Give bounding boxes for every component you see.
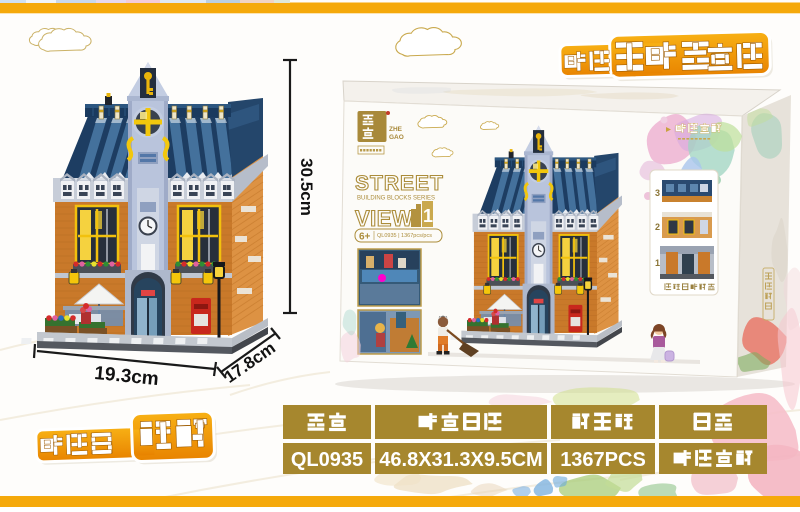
svg-text:QL0935 | 1367pcs/pcs: QL0935 | 1367pcs/pcs [377,233,432,239]
svg-text:STREET: STREET [355,172,444,195]
svg-text:GAO: GAO [389,134,404,141]
svg-text:46.8X31.3X9.5CM: 46.8X31.3X9.5CM [379,449,542,471]
svg-text:1: 1 [423,206,433,226]
svg-text:6+: 6+ [359,232,371,243]
svg-text:VIEW: VIEW [355,206,413,231]
svg-text:30.5cm: 30.5cm [297,158,316,216]
svg-text:1367PCS: 1367PCS [560,449,646,471]
svg-text:2: 2 [655,222,660,232]
svg-text:1: 1 [655,258,660,268]
svg-text:BUILDING BLOCKS SERIES: BUILDING BLOCKS SERIES [357,196,435,202]
svg-text:3: 3 [655,188,660,198]
svg-text:ZHE: ZHE [389,126,403,133]
svg-text:QL0935: QL0935 [291,449,363,471]
